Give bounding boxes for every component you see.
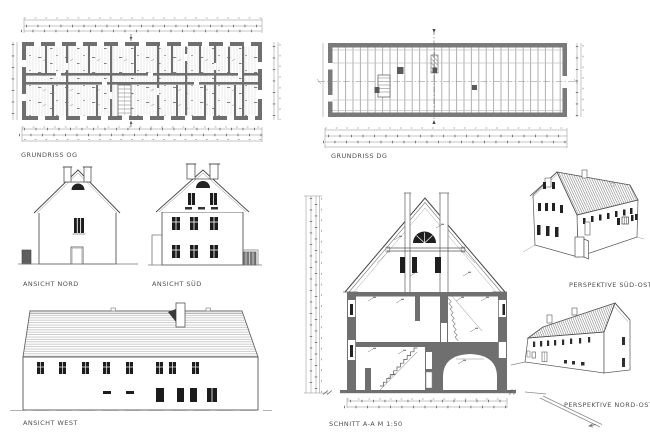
porch-block [575, 237, 589, 259]
cellar-entrance [243, 250, 258, 265]
dimension-chain-bottom [19, 121, 262, 142]
plan-walls [21, 41, 262, 120]
label-schnitt: SCHNITT A-A M 1:50 [329, 420, 403, 428]
perspektive-no-svg [508, 294, 650, 432]
grundriss-dg-svg [315, 26, 615, 152]
outbuilding-block [22, 250, 31, 264]
gable-window [73, 218, 86, 234]
dimension-chain-left [13, 42, 17, 120]
label-ansicht-sued: ANSICHT SÜD [152, 280, 202, 288]
grundriss-dg-plan [315, 26, 615, 152]
middle-windows [172, 217, 218, 230]
ansicht-west-svg [10, 300, 290, 422]
label-ansicht-nord: ANSICHT NORD [23, 280, 79, 288]
vent-slits [185, 207, 218, 210]
label-perspektive-no: PERSPEKTIVE NORD-OST [564, 401, 650, 409]
grundriss-og-svg [8, 8, 300, 156]
house-body [525, 303, 630, 373]
ansicht-west-elevation [10, 300, 290, 422]
ridge-vent [111, 308, 116, 311]
ansicht-nord-elevation [16, 162, 146, 270]
stair-og [448, 295, 482, 341]
grundriss-og-plan [8, 8, 300, 156]
label-grundriss-dg: GRUNDRISS DG [331, 152, 387, 160]
entrance-door [71, 247, 83, 264]
roof [23, 308, 258, 357]
garden-wall [152, 235, 162, 265]
wall [23, 357, 258, 410]
dimension-chain-bottom [323, 128, 567, 148]
roof-structure [343, 193, 507, 294]
label-perspektive-so: PERSPEKTIVE SÜD-OST [569, 281, 650, 289]
drawing-sheet: GRUNDRISS OG [0, 0, 650, 432]
schnitt-svg [298, 180, 516, 422]
dimension-chain-right [577, 43, 583, 117]
plan-walls [327, 43, 567, 117]
label-ansicht-west: ANSICHT WEST [23, 419, 78, 427]
schnitt-section [298, 180, 516, 422]
perspektive-so-svg [518, 162, 650, 274]
ansicht-sued-elevation [146, 160, 266, 270]
stair-eg [380, 348, 417, 390]
cellar-vault [443, 354, 497, 390]
dimension-chain-right [274, 42, 280, 120]
label-grundriss-og: GRUNDRISS OG [21, 151, 77, 159]
stair-symbol [118, 85, 131, 116]
dimension-chain-bottom [344, 398, 507, 408]
perspektive-nord-ost [508, 294, 650, 432]
dimension-chain-left [304, 196, 332, 395]
lower-windows [172, 245, 218, 258]
ansicht-sued-svg [146, 160, 266, 270]
dimension-chain-top [21, 18, 262, 41]
perspektive-sued-ost [518, 162, 650, 274]
ridge-vent [206, 308, 211, 311]
ansicht-nord-svg [16, 162, 146, 270]
road-lines [511, 362, 602, 427]
